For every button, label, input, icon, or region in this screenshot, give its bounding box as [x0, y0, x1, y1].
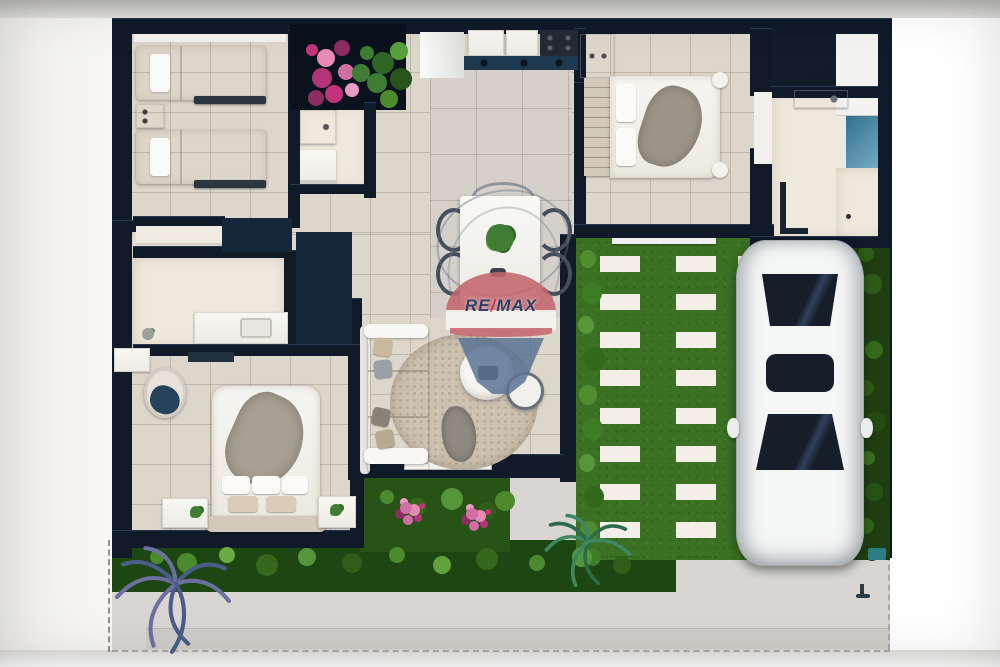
cushion [373, 359, 393, 379]
bed-headboard [584, 78, 610, 176]
garden-tap [856, 594, 870, 598]
side-hedge [858, 246, 874, 262]
palm-plant [536, 510, 640, 594]
shower-screen [780, 228, 808, 234]
driveway-shrubs [580, 250, 596, 268]
watermark-text: RE/MAX [446, 294, 556, 318]
watermark-text-re: RE [465, 296, 491, 315]
garden-shrubs [380, 490, 394, 504]
car-windshield [750, 414, 850, 470]
nightstand [136, 104, 164, 128]
car [736, 240, 864, 566]
closet-shelf [134, 34, 286, 42]
bed-bench [194, 180, 266, 188]
photo-background-right [892, 18, 1000, 667]
palm-plant [94, 538, 258, 660]
flower-planter-foliage [360, 46, 374, 60]
cushion [373, 337, 393, 357]
dresser [580, 34, 614, 78]
shower-screen [780, 182, 786, 234]
closet-block [222, 218, 292, 252]
decor-plant [142, 328, 154, 340]
fridge [420, 32, 464, 78]
pillow [228, 496, 258, 512]
wardrobe [754, 92, 772, 164]
wall [364, 102, 376, 198]
bathroom-sink [300, 110, 336, 144]
bed-post [712, 72, 728, 88]
front-garden-bed [360, 476, 510, 552]
pillow [222, 476, 250, 494]
bed-bench [194, 96, 266, 104]
pillow [282, 476, 308, 494]
pillow [616, 128, 636, 166]
utility-box [868, 548, 886, 560]
flower-planter-blooms [306, 44, 318, 56]
toilet [300, 150, 336, 184]
wall [133, 216, 225, 224]
property-line [888, 545, 890, 650]
sofa-armrest [364, 324, 428, 338]
twin-bed [136, 46, 266, 100]
sofa-armrest [364, 448, 428, 464]
car-rear-window [750, 274, 850, 326]
bed-headboard [206, 516, 326, 532]
potted-plant [190, 506, 202, 518]
wall [750, 28, 772, 96]
pillow [616, 84, 636, 122]
closet-shelf [136, 226, 222, 246]
vanity-sink [794, 90, 848, 108]
closet-block [296, 232, 352, 344]
flowering-shrub [400, 502, 412, 514]
dresser [114, 348, 150, 372]
wall [133, 344, 361, 356]
wall [574, 224, 774, 238]
potted-plant [330, 504, 342, 516]
car-mirror [727, 418, 739, 438]
wall [112, 18, 132, 558]
car-sunroof [766, 354, 834, 392]
kitchen-island [464, 56, 578, 70]
photo-background-top [0, 0, 1000, 18]
pillow [252, 476, 280, 494]
bed-post [712, 162, 728, 178]
floor-plan-photo: RE/MAX [0, 0, 1000, 667]
kitchen-counter [468, 30, 504, 56]
car-mirror [861, 418, 873, 438]
cushion [370, 406, 391, 427]
flower-planter-box [290, 24, 406, 110]
floor-drain [846, 214, 851, 219]
twin-bed [136, 130, 266, 184]
kitchen-counter [506, 30, 538, 56]
paver-strip [676, 256, 716, 556]
cushion [375, 429, 396, 450]
sink-basin [240, 318, 272, 338]
cooktop [540, 30, 578, 56]
pillow [266, 496, 296, 512]
wall [878, 18, 892, 240]
flowering-shrub [466, 508, 478, 520]
watermark-balloon-arc [450, 328, 552, 337]
watermark-text-max: MAX [496, 296, 537, 315]
media-console [188, 352, 234, 362]
